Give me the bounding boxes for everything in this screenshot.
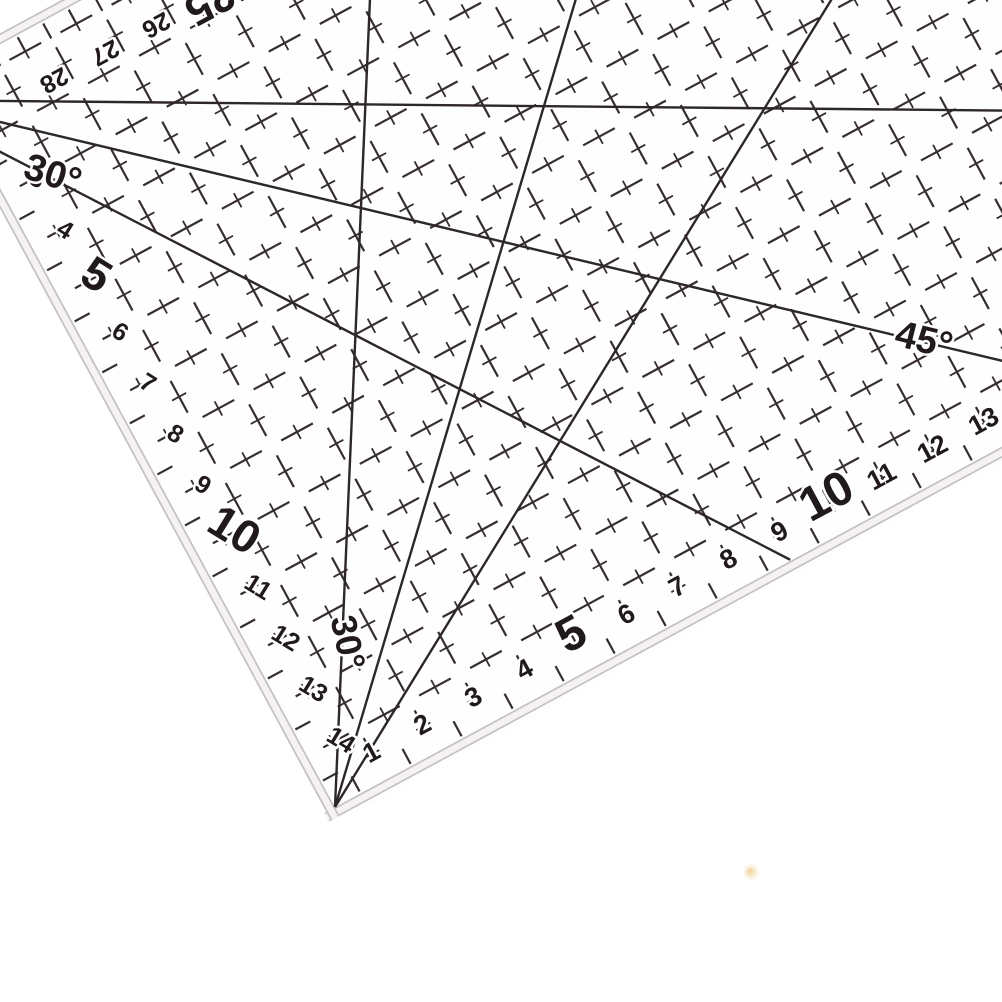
dust-speck [743, 864, 759, 880]
ruler-photo-svg: 1234567891011121334567891011121314252627… [0, 0, 1002, 1002]
product-photo-quilting-ruler: 1234567891011121334567891011121314252627… [0, 0, 1002, 1002]
